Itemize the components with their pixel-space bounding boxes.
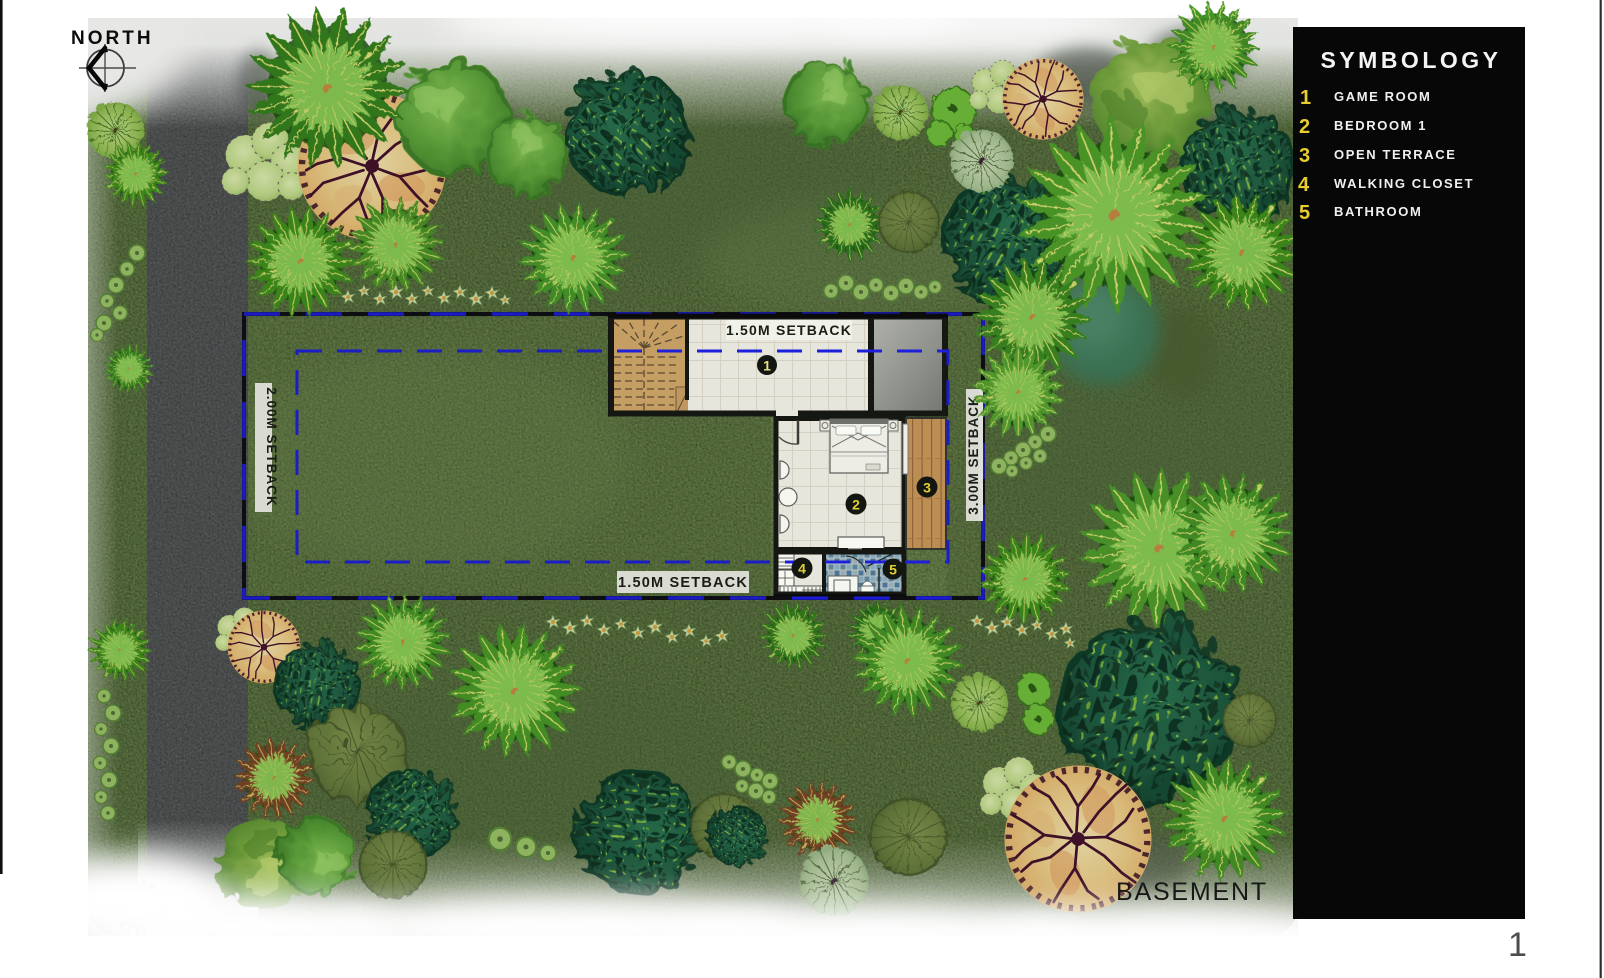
svg-text:SYMBOLOGY: SYMBOLOGY: [1320, 47, 1501, 73]
svg-text:GAME ROOM: GAME ROOM: [1334, 89, 1431, 104]
svg-text:BEDROOM 1: BEDROOM 1: [1334, 118, 1427, 133]
svg-text:1: 1: [1300, 87, 1311, 109]
svg-text:WALKING CLOSET: WALKING CLOSET: [1334, 176, 1474, 191]
svg-text:3: 3: [1299, 145, 1310, 167]
svg-text:BASEMENT: BASEMENT: [1116, 878, 1268, 906]
svg-text:4: 4: [1298, 174, 1310, 196]
svg-text:BATHROOM: BATHROOM: [1334, 204, 1422, 219]
svg-text:NORTH: NORTH: [71, 28, 154, 49]
svg-text:5: 5: [1299, 202, 1310, 224]
svg-text:2: 2: [1299, 116, 1310, 138]
svg-text:1: 1: [1508, 926, 1527, 964]
svg-text:OPEN TERRACE: OPEN TERRACE: [1334, 147, 1457, 162]
